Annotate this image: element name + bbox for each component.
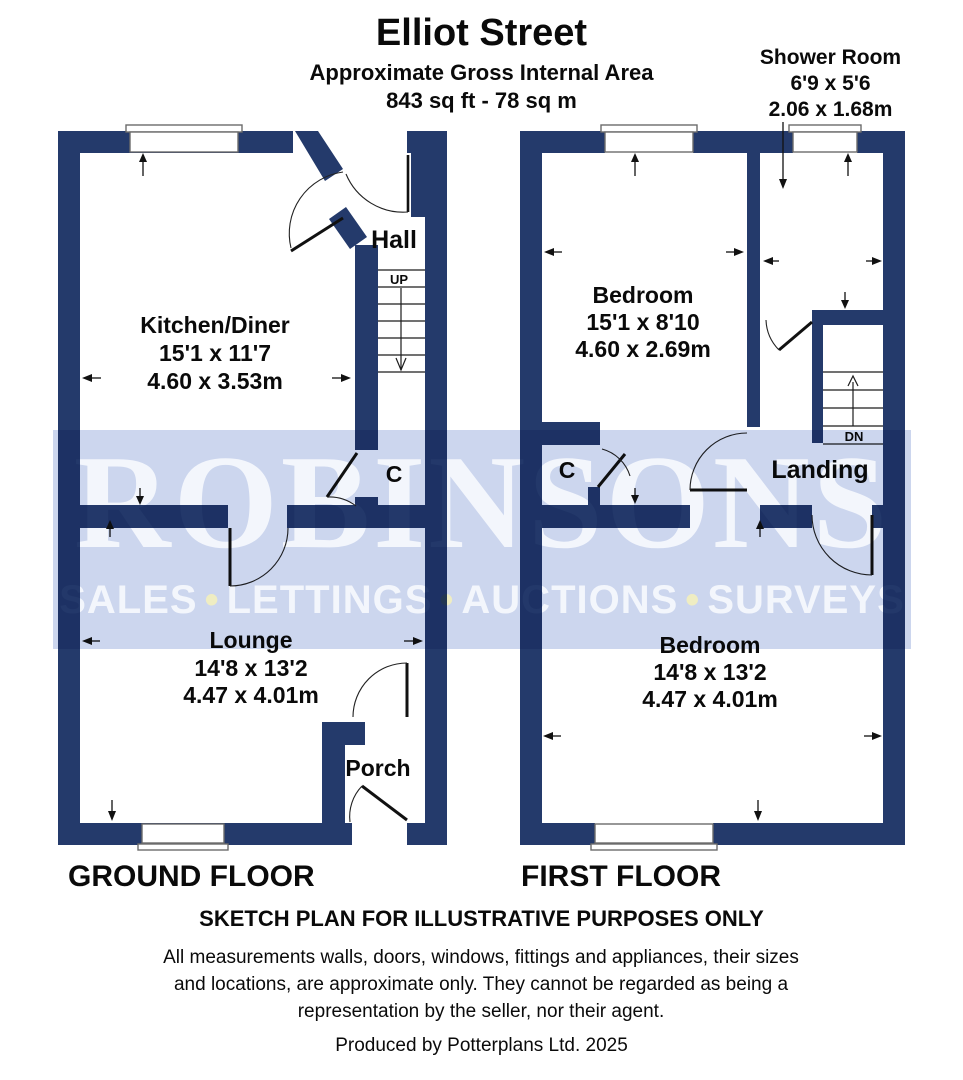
tagline-word: AUCTIONS xyxy=(461,578,678,622)
stairwell-wall xyxy=(812,310,823,443)
bedroom-front-name: Bedroom xyxy=(593,282,694,308)
watermark-brand-name: ROBINSONS xyxy=(53,430,911,572)
porch-front-door xyxy=(350,786,407,822)
tagline-bullet: • xyxy=(678,578,707,622)
kitchen-name: Kitchen/Diner xyxy=(140,312,290,338)
corner-wall xyxy=(411,131,425,217)
lounge-metric: 4.47 x 4.01m xyxy=(183,682,319,708)
watermark-tagline: SALES•LETTINGS•AUCTIONS•SURVEYS xyxy=(53,578,911,623)
bedroom-front-metric: 4.60 x 2.69m xyxy=(575,336,711,362)
tagline-bullet: • xyxy=(432,578,461,622)
tagline-word: LETTINGS xyxy=(227,578,433,622)
porch-door-opening xyxy=(352,823,407,845)
disclaimer-text: All measurements walls, doors, windows, … xyxy=(161,944,801,1025)
stairs-up-label: UP xyxy=(390,272,408,287)
kitchen-imperial: 15'1 x 11'7 xyxy=(159,340,271,366)
shower-room-window xyxy=(789,125,861,152)
bedroom-front-imperial: 15'1 x 8'10 xyxy=(586,309,699,335)
lounge-porch-door xyxy=(353,663,407,717)
hall-name: Hall xyxy=(371,226,417,254)
watermark-band: ROBINSONS SALES•LETTINGS•AUCTIONS•SURVEY… xyxy=(53,430,911,649)
hall-wall-stub xyxy=(329,207,367,249)
bedroom-rear-window xyxy=(591,824,717,850)
bedroom-rear-metric: 4.47 x 4.01m xyxy=(642,686,778,712)
kitchen-window xyxy=(126,125,242,152)
porch-wall-top xyxy=(322,722,365,745)
first-floor-title: FIRST FLOOR xyxy=(521,860,721,894)
porch-name: Porch xyxy=(345,755,410,781)
bedroom-rear-imperial: 14'8 x 13'2 xyxy=(653,659,766,685)
hall-wall xyxy=(355,245,378,450)
producer-credit: Produced by Potterplans Ltd. 2025 xyxy=(0,1035,963,1057)
tagline-word: SURVEYS xyxy=(707,578,904,622)
bedroom-front-window xyxy=(601,125,697,152)
floorplan-page: Elliot Street Approximate Gross Internal… xyxy=(0,0,963,1080)
shower-room-door xyxy=(766,320,812,350)
tagline-bullet: • xyxy=(198,578,227,622)
kitchen-metric: 4.60 x 3.53m xyxy=(147,368,283,394)
shower-room-wall xyxy=(812,310,905,325)
bedroom-divider-wall xyxy=(747,153,760,427)
sketch-disclaimer-title: SKETCH PLAN FOR ILLUSTRATIVE PURPOSES ON… xyxy=(0,906,963,932)
tagline-word: SALES xyxy=(59,578,197,622)
lounge-window xyxy=(138,824,228,850)
lounge-imperial: 14'8 x 13'2 xyxy=(194,655,307,681)
ground-floor-title: GROUND FLOOR xyxy=(68,860,315,894)
